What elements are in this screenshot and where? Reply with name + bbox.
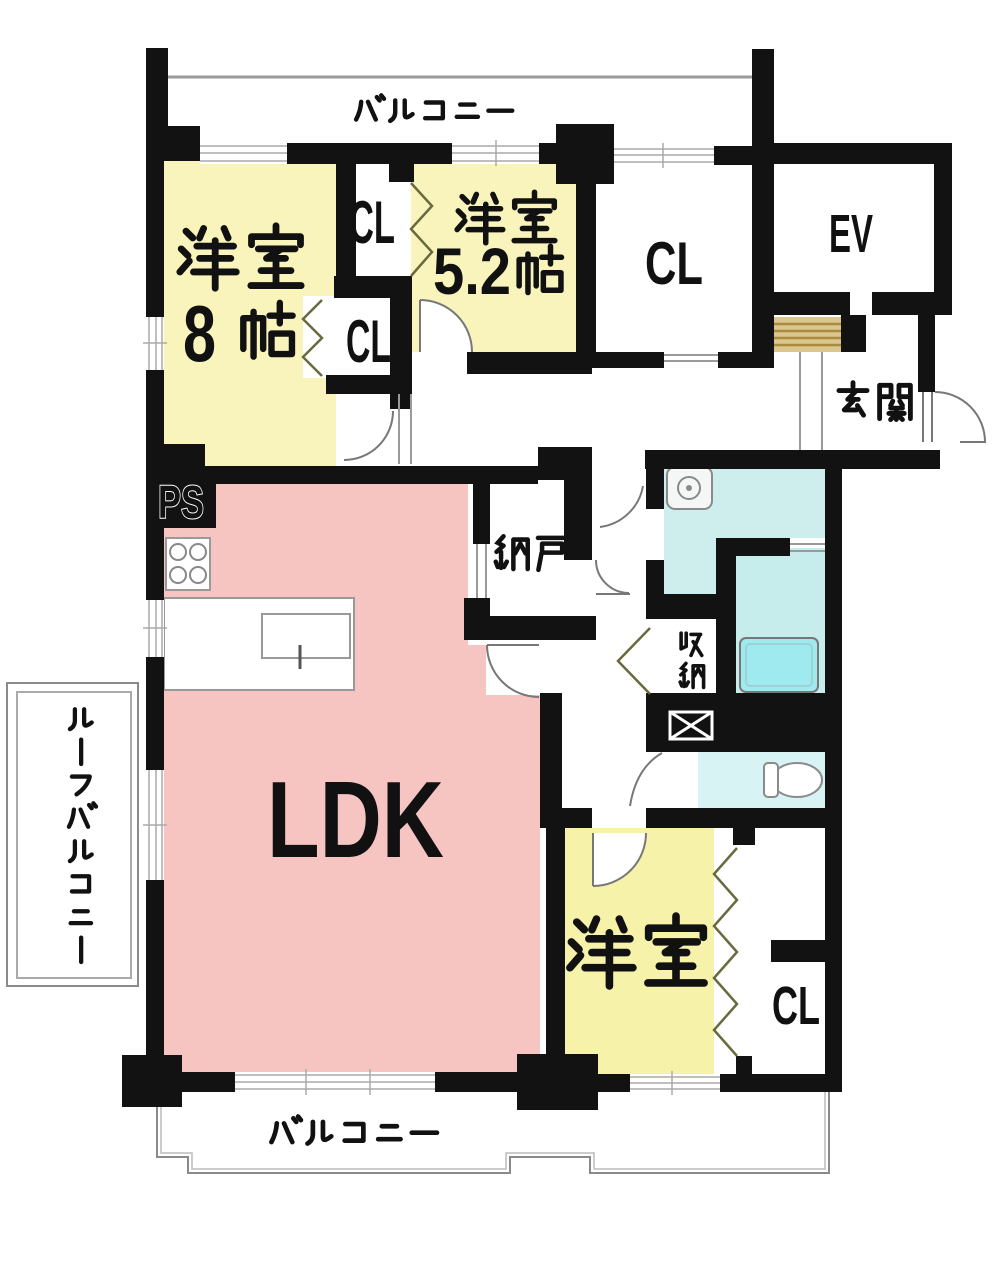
svg-text:CL: CL [346,308,391,375]
svg-text:EV: EV [829,204,873,264]
svg-text:CL: CL [772,976,820,1036]
svg-text:8: 8 [183,289,216,378]
svg-text:CL: CL [349,189,395,256]
svg-text:LDK: LDK [267,759,444,881]
svg-text:CL: CL [645,230,703,297]
svg-text:5.2: 5.2 [433,234,511,308]
svg-text:PS: PS [158,476,204,528]
